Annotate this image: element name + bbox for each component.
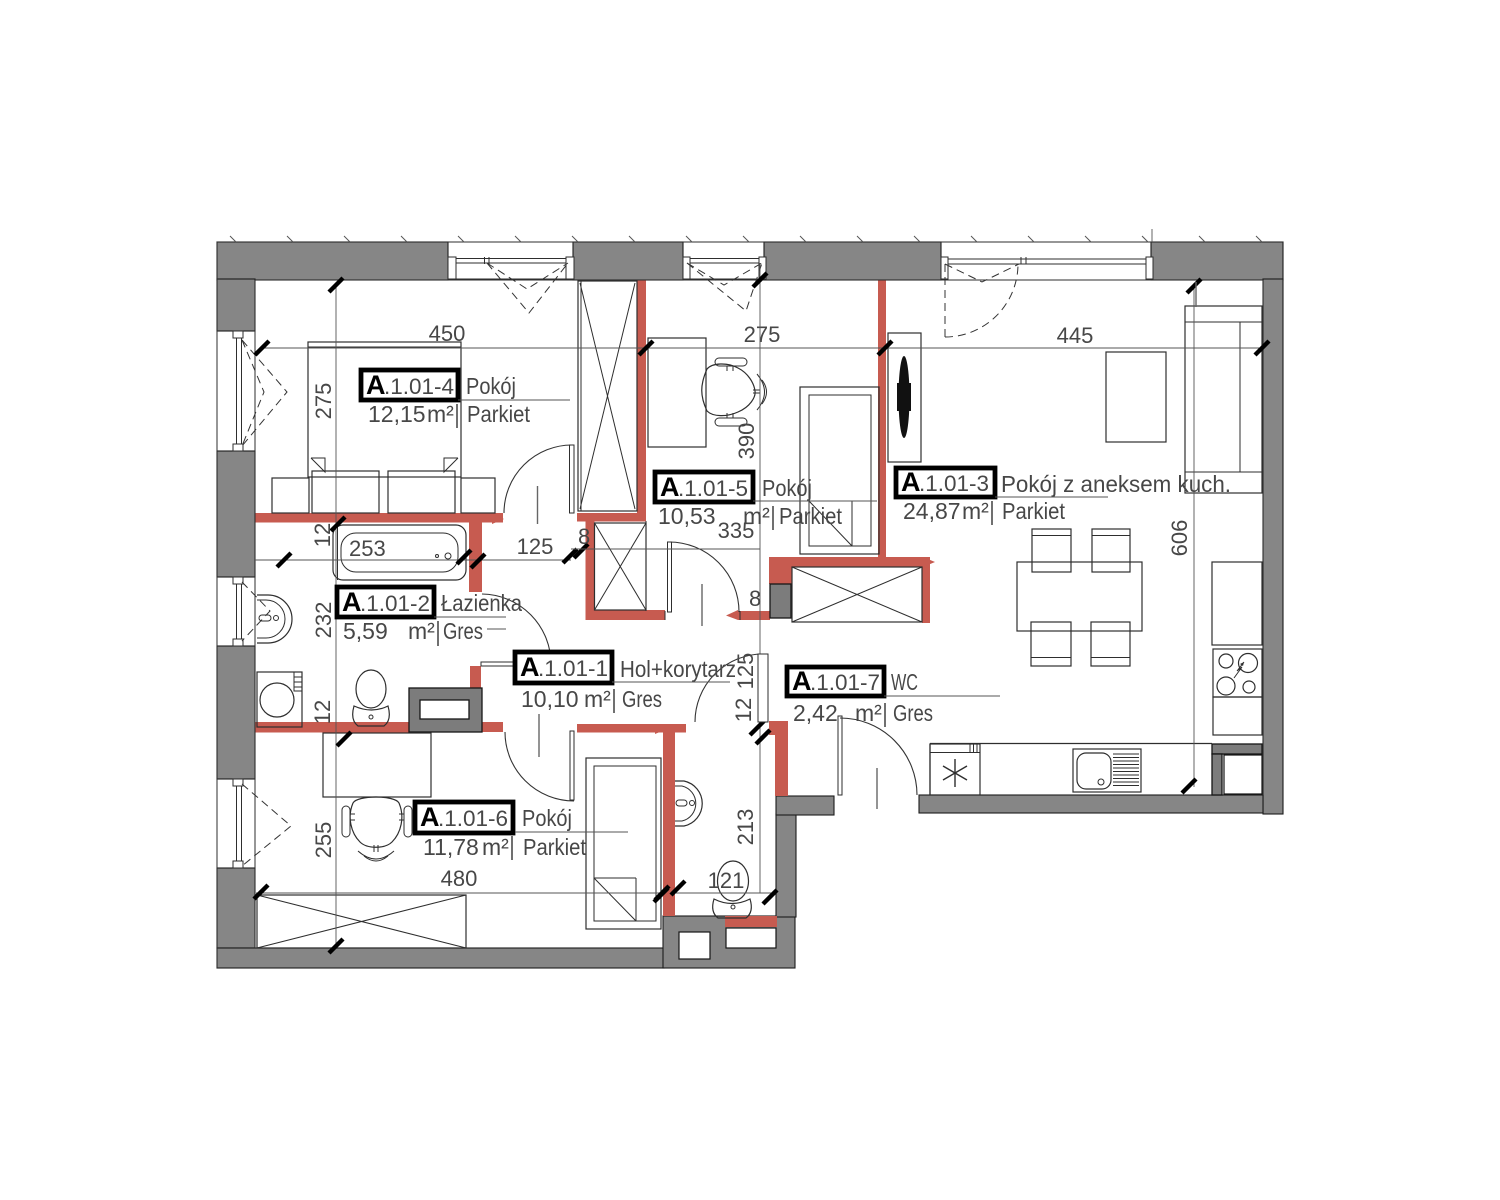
svg-text:2,42: 2,42 xyxy=(793,700,838,726)
svg-text:24,87: 24,87 xyxy=(903,498,961,524)
svg-text:121: 121 xyxy=(708,868,745,893)
svg-text:232: 232 xyxy=(311,602,336,639)
svg-text:11,78: 11,78 xyxy=(423,834,479,860)
svg-text:.1.01-3: .1.01-3 xyxy=(919,471,989,496)
svg-text:A: A xyxy=(660,472,680,502)
svg-text:.1.01-1: .1.01-1 xyxy=(538,656,608,681)
svg-text:A: A xyxy=(901,467,921,497)
svg-text:A: A xyxy=(366,370,386,400)
svg-text:8: 8 xyxy=(578,524,590,549)
svg-text:10,10: 10,10 xyxy=(521,686,579,712)
svg-text:.1.01-6: .1.01-6 xyxy=(438,806,508,831)
svg-text:125: 125 xyxy=(517,534,554,559)
svg-text:8: 8 xyxy=(749,586,761,611)
svg-text:12: 12 xyxy=(731,698,756,722)
svg-text:606: 606 xyxy=(1167,520,1192,557)
svg-text:A: A xyxy=(342,587,362,617)
svg-text:WC: WC xyxy=(891,669,918,695)
svg-text:m²: m² xyxy=(408,618,435,644)
svg-text:390: 390 xyxy=(734,423,759,460)
svg-text:Gres: Gres xyxy=(893,700,933,726)
svg-text:.1.01-5: .1.01-5 xyxy=(678,476,748,501)
svg-text:125: 125 xyxy=(733,653,758,690)
svg-text:Hol+korytarz: Hol+korytarz xyxy=(620,656,736,682)
svg-text:213: 213 xyxy=(733,809,758,846)
svg-text:.1.01-2: .1.01-2 xyxy=(360,591,430,616)
svg-text:m²: m² xyxy=(855,700,882,726)
svg-text:10,53: 10,53 xyxy=(658,503,716,529)
svg-text:275: 275 xyxy=(744,322,781,347)
svg-text:Pokój: Pokój xyxy=(762,475,812,501)
svg-text:255: 255 xyxy=(311,822,336,859)
svg-text:Łazienka: Łazienka xyxy=(441,590,522,616)
svg-text:275: 275 xyxy=(311,383,336,420)
svg-text:Parkiet: Parkiet xyxy=(467,401,531,427)
svg-text:A: A xyxy=(792,666,812,696)
svg-text:A: A xyxy=(420,802,440,832)
svg-text:Parkiet: Parkiet xyxy=(779,503,843,529)
svg-text:12: 12 xyxy=(310,700,335,724)
svg-text:Pokój z aneksem kuch.: Pokój z aneksem kuch. xyxy=(1001,471,1231,497)
svg-text:m²: m² xyxy=(482,834,509,860)
svg-text:480: 480 xyxy=(441,866,478,891)
svg-text:253: 253 xyxy=(349,536,386,561)
svg-text:Gres: Gres xyxy=(622,686,662,712)
svg-text:m²: m² xyxy=(584,686,611,712)
svg-text:m²: m² xyxy=(743,503,770,529)
svg-text:Pokój: Pokój xyxy=(522,805,572,831)
svg-text:.1.01-7: .1.01-7 xyxy=(810,670,880,695)
svg-text:Pokój: Pokój xyxy=(466,373,516,399)
svg-text:445: 445 xyxy=(1057,323,1094,348)
svg-text:.1.01-4: .1.01-4 xyxy=(384,374,454,399)
svg-text:A: A xyxy=(520,652,540,682)
svg-text:12: 12 xyxy=(310,523,335,547)
svg-text:Gres: Gres xyxy=(443,618,483,644)
svg-text:m²: m² xyxy=(427,401,454,427)
svg-text:Parkiet: Parkiet xyxy=(523,834,587,860)
svg-text:5,59: 5,59 xyxy=(343,618,388,644)
svg-text:Parkiet: Parkiet xyxy=(1002,498,1066,524)
svg-text:m²: m² xyxy=(962,498,989,524)
svg-text:12,15: 12,15 xyxy=(368,401,426,427)
svg-text:450: 450 xyxy=(429,321,466,346)
